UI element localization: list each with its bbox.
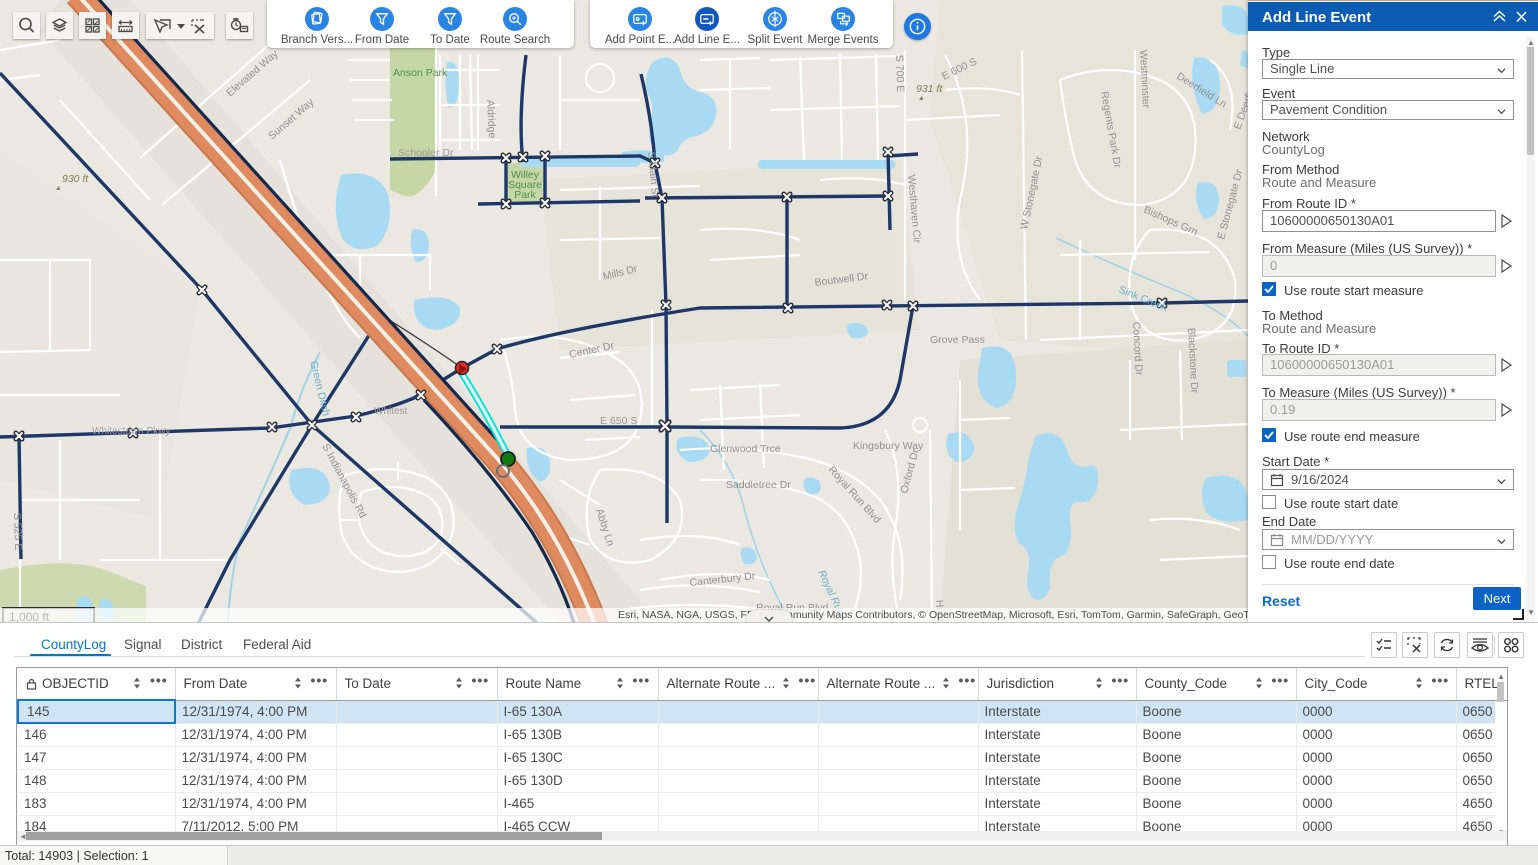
svg-text:Anson Park: Anson Park xyxy=(393,67,448,79)
svg-text:Aldridge: Aldridge xyxy=(484,100,498,139)
svg-text:Glenwood Trce: Glenwood Trce xyxy=(710,443,781,455)
svg-text:S 525 E: S 525 E xyxy=(11,513,24,551)
svg-text:Schooler Dr: Schooler Dr xyxy=(398,147,454,159)
svg-text:E 650 S: E 650 S xyxy=(600,415,637,427)
svg-text:Saddletree Dr: Saddletree Dr xyxy=(726,479,791,491)
svg-text:Park: Park xyxy=(514,189,536,201)
svg-text:930 ft: 930 ft xyxy=(62,173,89,185)
svg-text:S 700 E: S 700 E xyxy=(893,55,906,93)
svg-text:Whitest: Whitest xyxy=(374,406,408,417)
svg-text:Grove Pass: Grove Pass xyxy=(930,334,985,346)
svg-text:Whitestown Pkwy: Whitestown Pkwy xyxy=(92,426,170,437)
